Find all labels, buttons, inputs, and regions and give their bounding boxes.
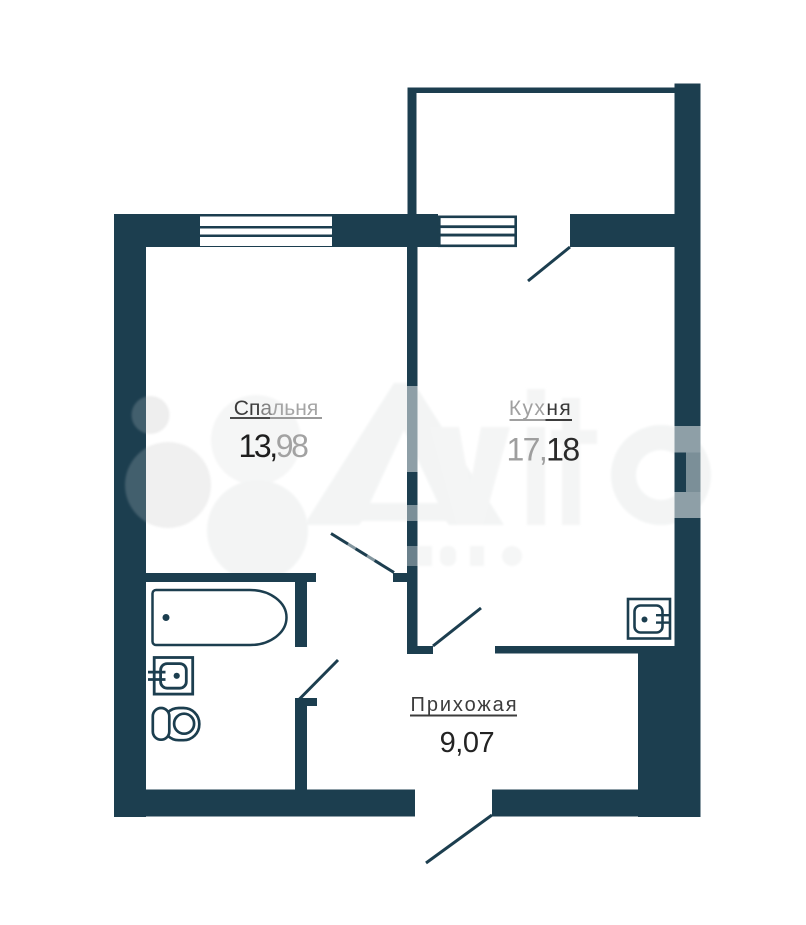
svg-text:9,07: 9,07 (440, 727, 494, 759)
svg-text:Прихожая: Прихожая (411, 694, 519, 716)
svg-text:13,98: 13,98 (238, 428, 308, 464)
svg-text:Спальня: Спальня (234, 397, 318, 420)
svg-text:Кухня: Кухня (509, 397, 572, 420)
svg-text:17,18: 17,18 (506, 432, 579, 468)
